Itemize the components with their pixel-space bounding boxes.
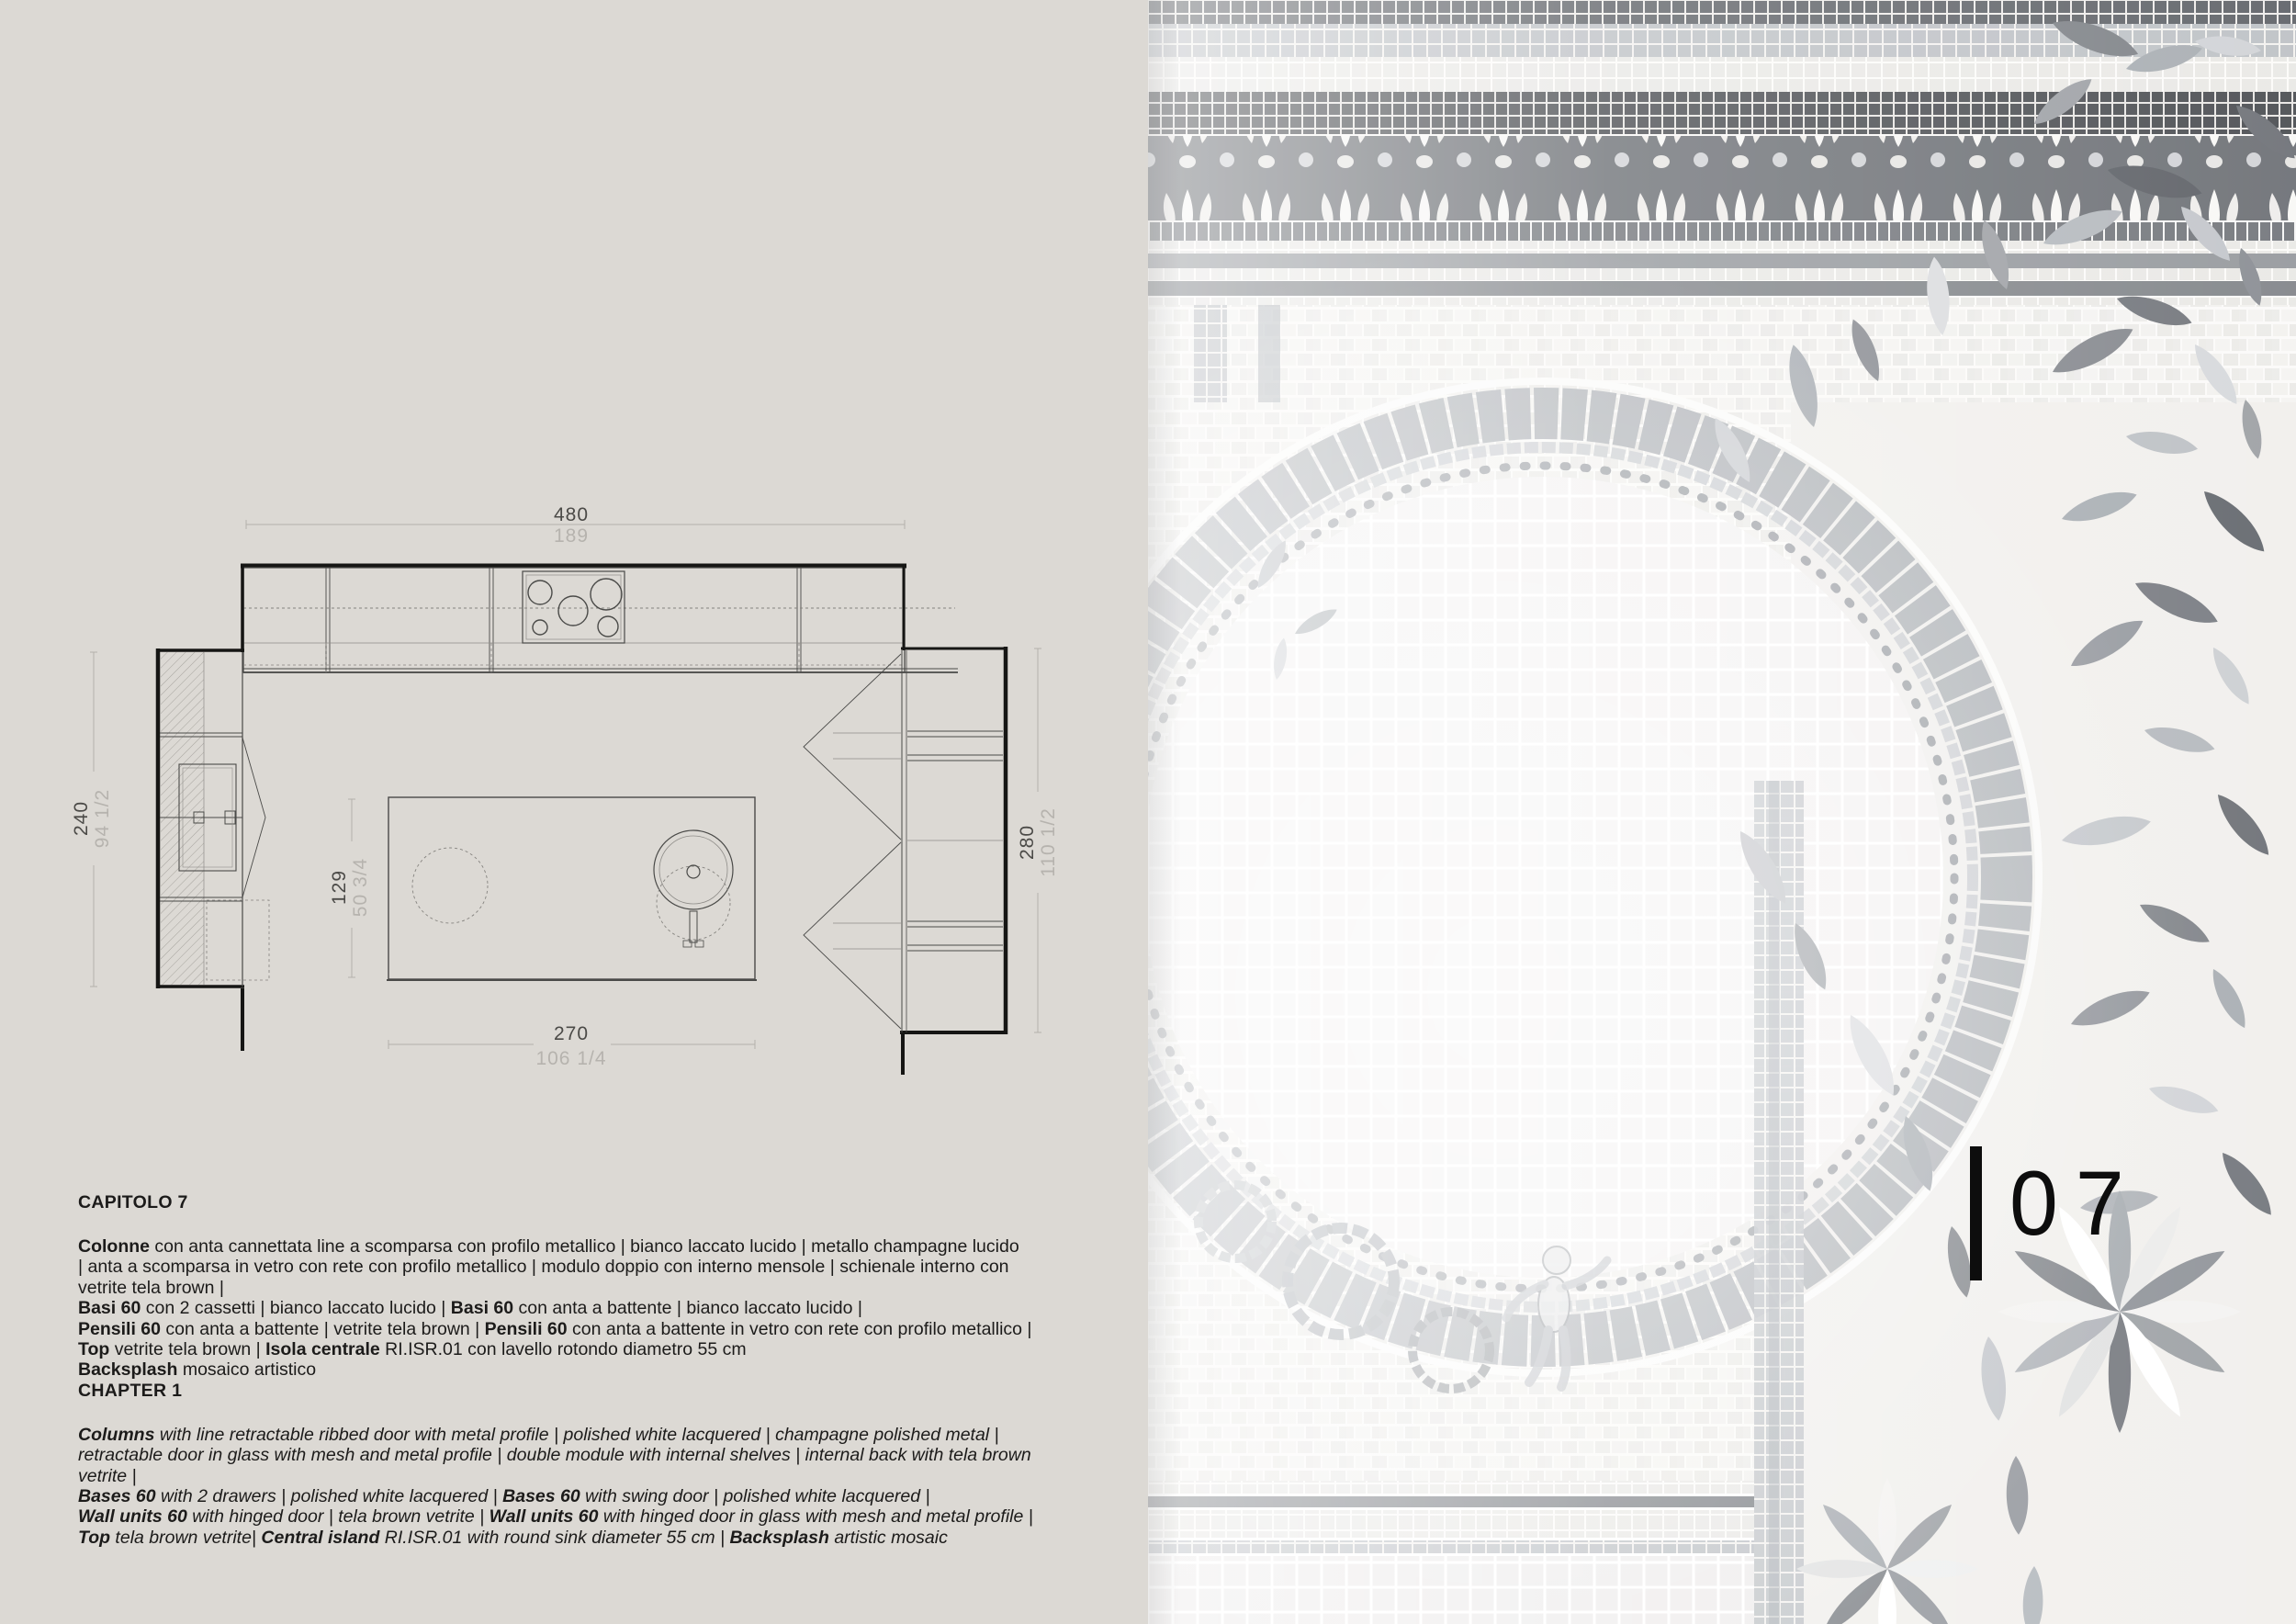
mosaic-photo-panel: 07 [1148,0,2296,1624]
dim-left-cm: 240 [71,801,92,836]
door-projection-dashed [207,900,269,980]
wall-units-top-run [241,566,958,672]
right-tall-units [804,647,1007,1075]
dim-right-cm: 280 [1017,825,1038,860]
chapter-title-english: CHAPTER 1 [78,1381,1070,1401]
dim-left-inch: 94 1/2 [92,789,113,848]
dim-island-width-cm: 270 [554,1023,589,1044]
tap [690,911,697,942]
dim-island-depth-cm: 129 [329,870,350,905]
dim-top-inch: 189 [554,525,589,547]
catalog-spread: { "colors": { "page_background": "#dcd9d… [0,0,2296,1624]
door-swing [242,738,265,897]
dimension-island-width: 270 106 1/4 [388,1023,755,1069]
kitchen-floor-plan: 480 189 [51,496,1079,1084]
description-block: CAPITOLO 7 Colonne con anta cannettata l… [78,1192,1070,1548]
dim-island-depth-inch: 50 3/4 [350,858,371,917]
dimension-top: 480 189 [246,504,905,547]
dim-top-cm: 480 [554,504,589,525]
mosaic-artwork [1148,0,2296,1624]
wall-hatch [161,652,204,985]
cooktop [523,571,625,643]
cooking-zone-dashed [412,848,488,923]
page-gutter-shadow [1148,0,1181,1624]
dimension-left: 240 94 1/2 [71,652,113,987]
catalog-left-page: 480 189 [0,0,1148,1624]
dim-island-width-inch: 106 1/4 [535,1048,606,1069]
description-english: Columns with line retractable ribbed doo… [78,1425,1070,1548]
chapter-title-italian: CAPITOLO 7 [78,1192,1070,1212]
door-swing [804,654,901,840]
dim-right-inch: 110 1/2 [1038,807,1059,877]
left-tall-units [156,648,269,1051]
round-sink [654,830,733,947]
chapter-number-badge: 07 [1970,1146,2147,1280]
chapter-number-text: 07 [2009,1146,2142,1248]
door-swing [804,842,901,1029]
dimension-right: 280 110 1/2 [1017,648,1059,1032]
chapter-number-bar [1970,1146,1982,1280]
dimension-island-depth: 129 50 3/4 [329,799,371,977]
central-island [387,797,757,980]
description-italian: Colonne con anta cannettata line a scomp… [78,1236,1070,1381]
